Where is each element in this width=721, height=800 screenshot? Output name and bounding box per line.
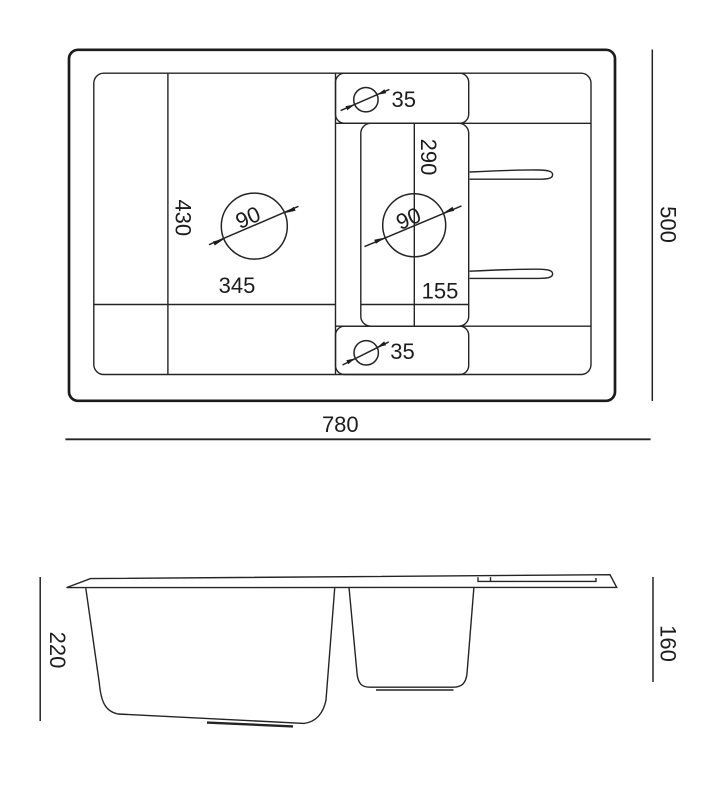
svg-text:220: 220 — [45, 632, 70, 669]
svg-text:500: 500 — [655, 206, 680, 243]
svg-text:35: 35 — [390, 339, 414, 364]
svg-text:430: 430 — [170, 199, 195, 236]
svg-text:345: 345 — [219, 273, 256, 298]
svg-text:780: 780 — [322, 412, 359, 437]
svg-text:35: 35 — [391, 87, 415, 112]
svg-text:90: 90 — [232, 201, 264, 234]
svg-text:160: 160 — [656, 625, 681, 662]
svg-text:90: 90 — [392, 202, 424, 235]
svg-text:290: 290 — [416, 139, 441, 176]
svg-text:155: 155 — [422, 278, 459, 303]
